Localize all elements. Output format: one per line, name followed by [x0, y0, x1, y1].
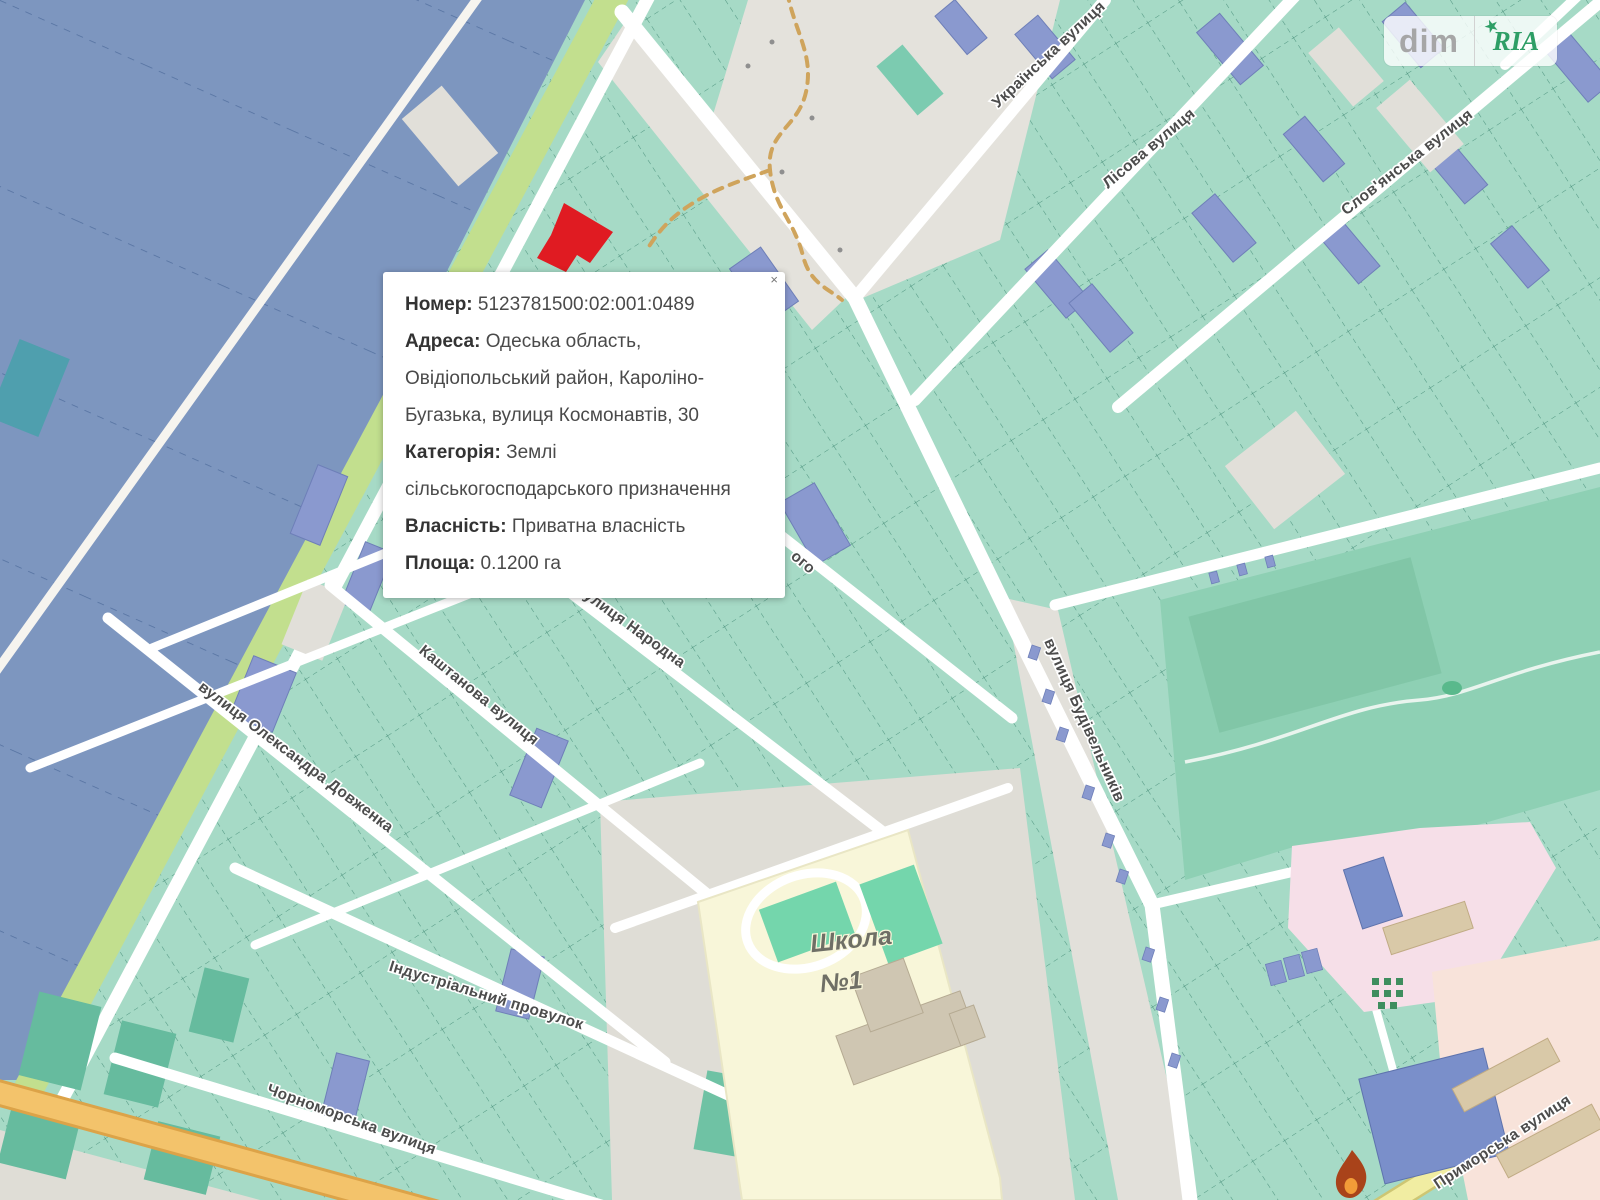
cadastral-map-page: Українська вулиця Лісова вулиця Слов'янс…: [0, 0, 1600, 1200]
field-address-label: Адреса:: [405, 331, 480, 352]
dim-ria-watermark: dim ★ RIA: [1384, 16, 1557, 66]
field-ownership-label: Власність:: [405, 516, 507, 537]
field-area-label: Площа:: [405, 553, 475, 574]
popup-close-icon[interactable]: ×: [770, 273, 778, 287]
field-number-value: 5123781500:02:001:0489: [478, 294, 695, 315]
field-number-label: Номер:: [405, 294, 473, 315]
field-ownership-value: Приватна власність: [512, 516, 686, 537]
field-area-value: 0.1200 га: [481, 553, 561, 574]
school-label-line2: №1: [819, 966, 864, 998]
parcel-info-popup: × Номер: 5123781500:02:001:0489Адреса: О…: [383, 272, 785, 598]
dim-logo: dim: [1384, 16, 1474, 66]
ria-logo: ★ RIA: [1475, 16, 1557, 66]
map-canvas[interactable]: Українська вулиця Лісова вулиця Слов'янс…: [0, 0, 1600, 1200]
field-category-label: Категорія:: [405, 442, 501, 463]
popup-body: Номер: 5123781500:02:001:0489Адреса: Оде…: [405, 286, 757, 582]
